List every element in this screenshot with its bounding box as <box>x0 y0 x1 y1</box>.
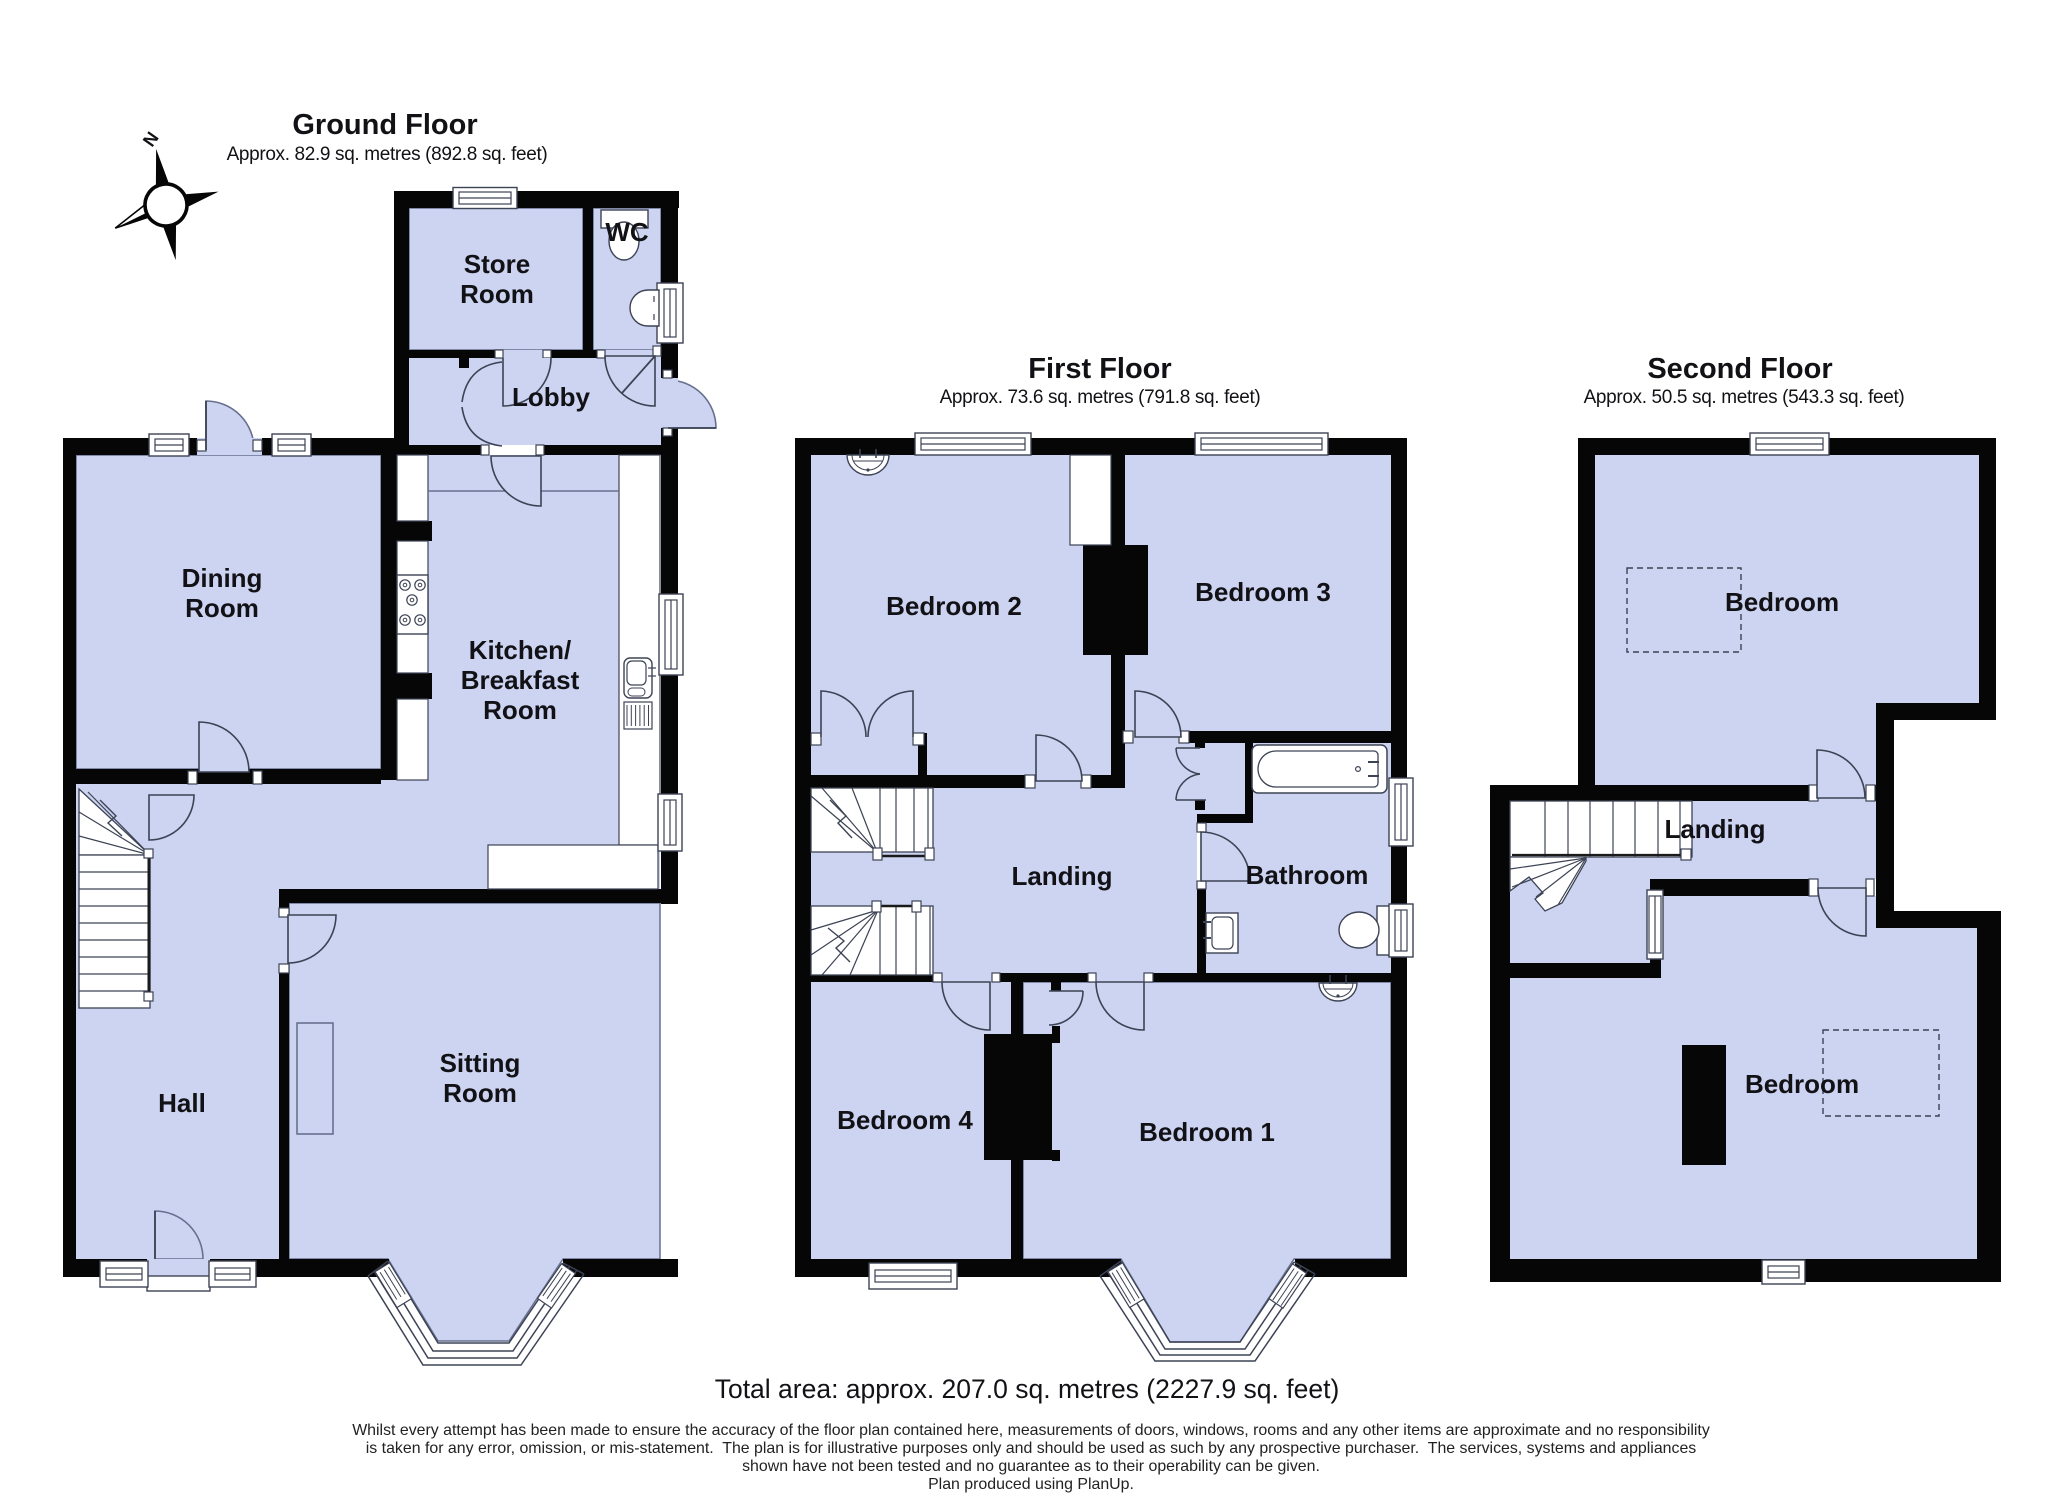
svg-text:Plan produced using PlanUp.: Plan produced using PlanUp. <box>928 1476 1134 1493</box>
svg-text:Hall: Hall <box>158 1088 206 1118</box>
svg-text:Store: Store <box>464 249 530 279</box>
svg-text:Approx. 73.6 sq. metres (791.8: Approx. 73.6 sq. metres (791.8 sq. feet) <box>940 387 1261 408</box>
svg-text:Dining: Dining <box>182 563 263 593</box>
svg-text:Approx. 82.9 sq. metres (892.8: Approx. 82.9 sq. metres (892.8 sq. feet) <box>227 144 548 165</box>
svg-text:Bedroom: Bedroom <box>1745 1069 1859 1099</box>
svg-text:is taken for any error, omissi: is taken for any error, omission, or mis… <box>366 1440 1697 1457</box>
svg-text:Kitchen/: Kitchen/ <box>469 635 572 665</box>
svg-text:Whilst every attempt has been: Whilst every attempt has been made to en… <box>352 1422 1710 1439</box>
svg-text:First Floor: First Floor <box>1028 353 1171 385</box>
svg-text:Approx. 50.5 sq. metres (543.3: Approx. 50.5 sq. metres (543.3 sq. feet) <box>1584 387 1905 408</box>
svg-text:Room: Room <box>483 695 557 725</box>
svg-text:Bedroom 4: Bedroom 4 <box>837 1105 973 1135</box>
svg-text:Second Floor: Second Floor <box>1647 353 1832 385</box>
svg-text:shown have not been tested and: shown have not been tested and no guaran… <box>742 1458 1320 1475</box>
svg-text:Bedroom 3: Bedroom 3 <box>1195 577 1331 607</box>
svg-text:Bedroom 2: Bedroom 2 <box>886 591 1022 621</box>
svg-text:Room: Room <box>185 593 259 623</box>
svg-text:Bedroom: Bedroom <box>1725 587 1839 617</box>
svg-text:Lobby: Lobby <box>512 382 591 412</box>
svg-text:Bedroom 1: Bedroom 1 <box>1139 1117 1275 1147</box>
svg-text:Total area: approx. 207.0 sq.: Total area: approx. 207.0 sq. metres (22… <box>715 1374 1340 1404</box>
svg-text:Breakfast: Breakfast <box>461 665 580 695</box>
svg-text:Sitting: Sitting <box>440 1048 521 1078</box>
svg-text:Room: Room <box>443 1078 517 1108</box>
svg-text:WC: WC <box>605 217 649 247</box>
svg-text:Landing: Landing <box>1664 814 1765 844</box>
svg-text:Ground Floor: Ground Floor <box>292 109 477 141</box>
svg-text:Room: Room <box>460 279 534 309</box>
svg-text:Bathroom: Bathroom <box>1246 860 1369 890</box>
svg-text:Landing: Landing <box>1011 861 1112 891</box>
